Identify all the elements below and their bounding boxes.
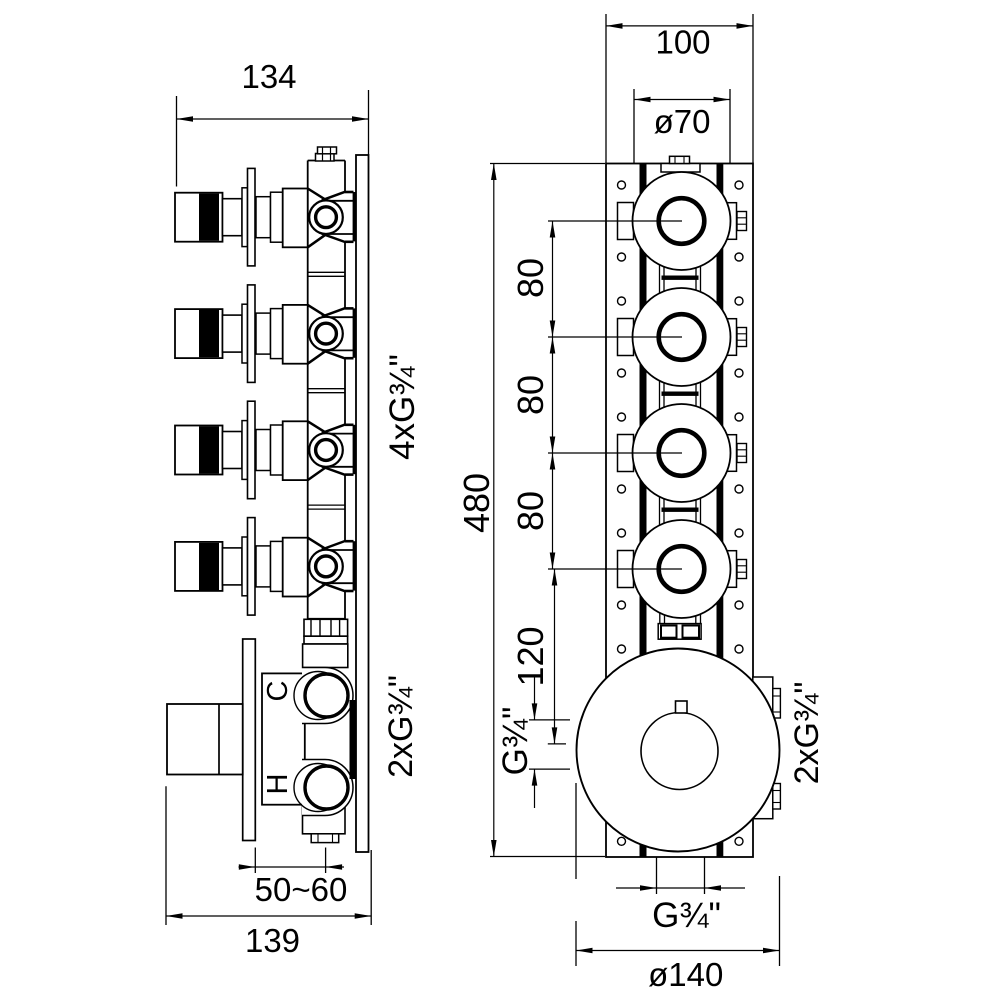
svg-text:100: 100 (655, 24, 710, 61)
svg-text:4xG¾": 4xG¾" (383, 354, 422, 460)
svg-text:ø70: ø70 (654, 103, 711, 140)
svg-text:H: H (262, 774, 294, 795)
svg-text:80: 80 (510, 375, 551, 415)
svg-text:139: 139 (245, 922, 300, 959)
svg-text:2xG¾": 2xG¾" (382, 675, 420, 778)
svg-text:2xG¾": 2xG¾" (788, 682, 826, 785)
svg-text:480: 480 (456, 473, 497, 533)
svg-text:ø140: ø140 (648, 956, 723, 993)
svg-text:C: C (262, 681, 294, 702)
svg-text:80: 80 (510, 258, 551, 298)
svg-text:134: 134 (241, 58, 296, 95)
svg-text:80: 80 (510, 491, 551, 531)
svg-text:50~60: 50~60 (255, 871, 348, 908)
svg-text:G¾": G¾" (496, 707, 535, 776)
svg-text:G¾": G¾" (652, 896, 721, 935)
svg-text:120: 120 (510, 626, 551, 686)
